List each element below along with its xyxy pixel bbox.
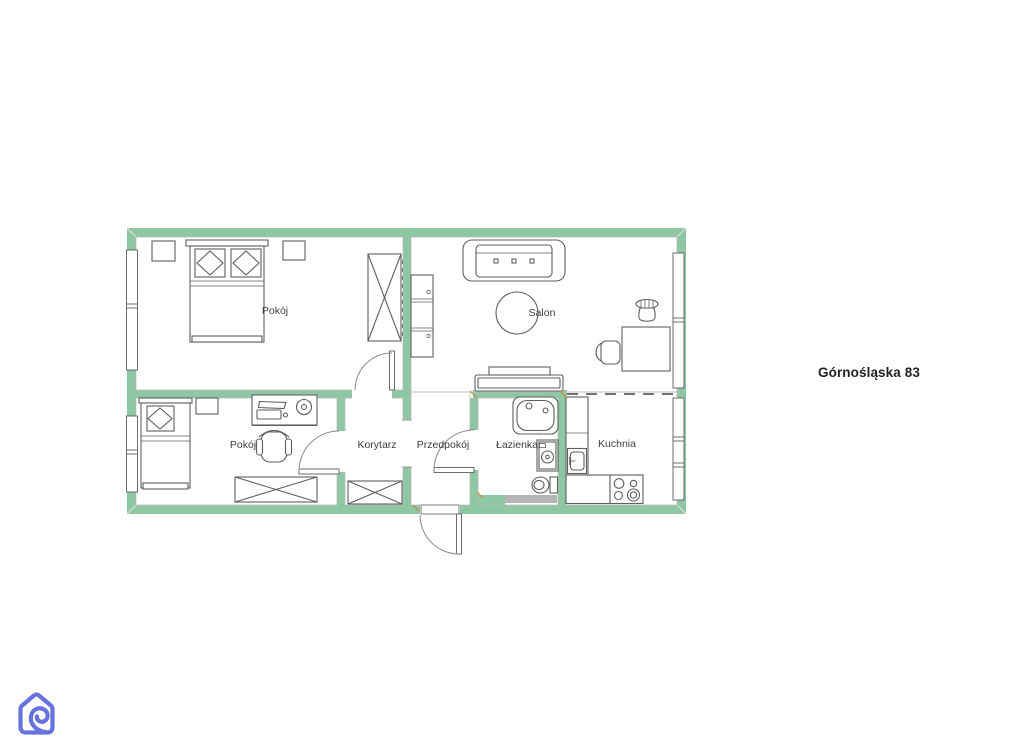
bed-headboard [186,240,268,246]
window-right-bottom [673,398,684,500]
room-label-salon: Salon [529,307,556,319]
pillow [231,249,261,277]
desk [252,395,317,426]
nightstand [283,241,305,260]
room-label-przedpokoj: Przedpokój [417,439,470,451]
laptop-screen [259,402,287,409]
door-bedroom-top [355,351,395,390]
sofa [463,240,565,281]
toilet [532,477,558,493]
door-bedroom-bottom [299,431,339,474]
bathtub [513,397,558,434]
window-left-bottom [127,416,138,492]
desk [622,327,670,371]
address-label: Górnośląska 83 [818,365,920,380]
room-label-lazienka: Łazienka [496,439,538,451]
radiator [505,495,557,503]
room-label-pokoj-bottom: Pokój [230,439,256,451]
stove [610,475,643,504]
potted-plant [636,300,658,322]
house-loop-logo-icon [16,688,58,736]
furniture-korytarz [348,481,402,504]
bed-footboard [192,336,262,342]
washing-machine [537,440,558,471]
bed-headboard [139,398,192,403]
window-right-top [673,253,684,388]
bed-footboard [143,483,188,489]
desk-chair [257,431,292,463]
tv-cabinet [475,367,563,391]
furniture-bedroom-top [152,240,403,342]
wardrobe [348,481,402,504]
furniture-bedroom-bottom [139,395,317,502]
page: { "page": { "background": "#ffffff" }, "… [0,0,1024,749]
desk-lamp [297,400,312,415]
room-label-pokoj-top: Pokój [262,305,288,317]
room-label-korytarz: Korytarz [357,439,396,451]
nightstand [196,398,218,414]
furniture-kitchen [566,397,643,504]
nightstand [152,241,175,261]
doors [299,351,474,554]
laptop-base [257,410,281,419]
door-entrance [420,514,462,554]
wall-cabinet [411,275,433,357]
kitchen-counter-bottom [566,475,610,504]
pillow [195,249,225,277]
pillow [147,406,174,431]
door-bathroom [434,430,474,473]
wardrobe [235,477,317,502]
window-left-top [127,250,138,370]
desk-chair [596,341,620,364]
wardrobe [368,254,403,341]
room-label-kuchnia: Kuchnia [598,438,636,450]
kitchen-sink [568,449,587,474]
